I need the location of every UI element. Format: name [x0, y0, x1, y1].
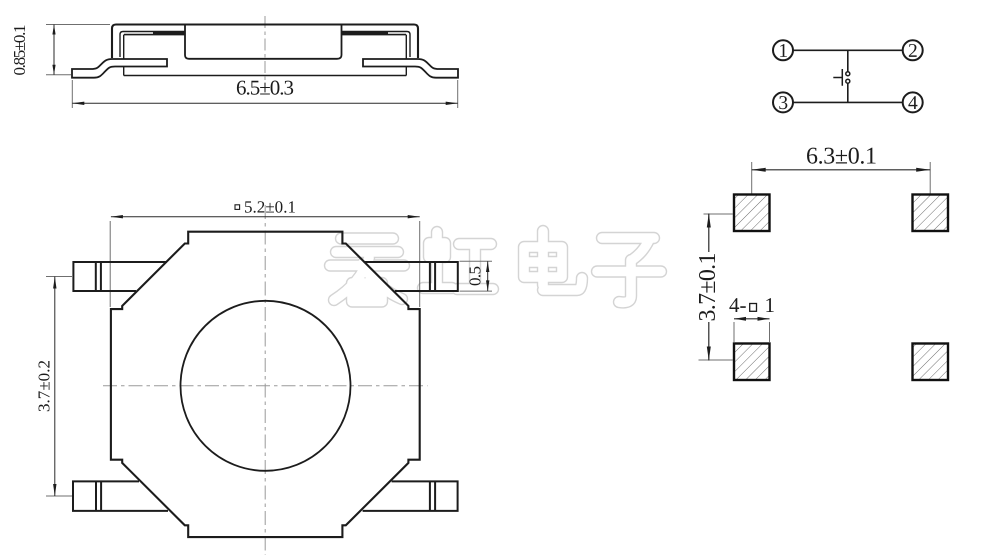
svg-text:6.3±0.1: 6.3±0.1	[806, 143, 877, 169]
svg-text:3.7±0.2: 3.7±0.2	[35, 360, 54, 412]
svg-text:3.7±0.1: 3.7±0.1	[695, 253, 721, 322]
svg-text:0.85±0.1: 0.85±0.1	[10, 25, 29, 76]
svg-text:4-: 4-	[729, 293, 747, 317]
svg-text:6.5±0.3: 6.5±0.3	[236, 75, 294, 99]
svg-text:2: 2	[908, 41, 918, 62]
svg-text:1: 1	[764, 293, 775, 317]
svg-text:5.2±0.1: 5.2±0.1	[244, 197, 296, 216]
svg-text:1: 1	[778, 41, 788, 62]
svg-text:3: 3	[778, 93, 788, 114]
svg-text:4: 4	[908, 93, 918, 114]
svg-text:0.5: 0.5	[466, 266, 485, 286]
